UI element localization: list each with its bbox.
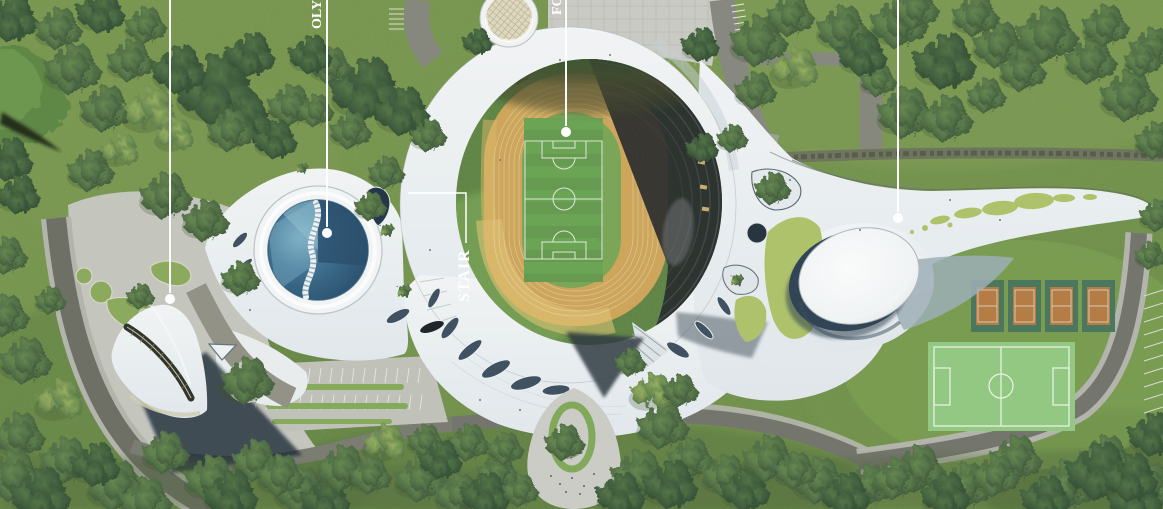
svg-text:STAIR: STAIR [456, 249, 473, 302]
svg-text:FO: FO [550, 0, 565, 15]
svg-text:OLY: OLY [310, 0, 325, 29]
